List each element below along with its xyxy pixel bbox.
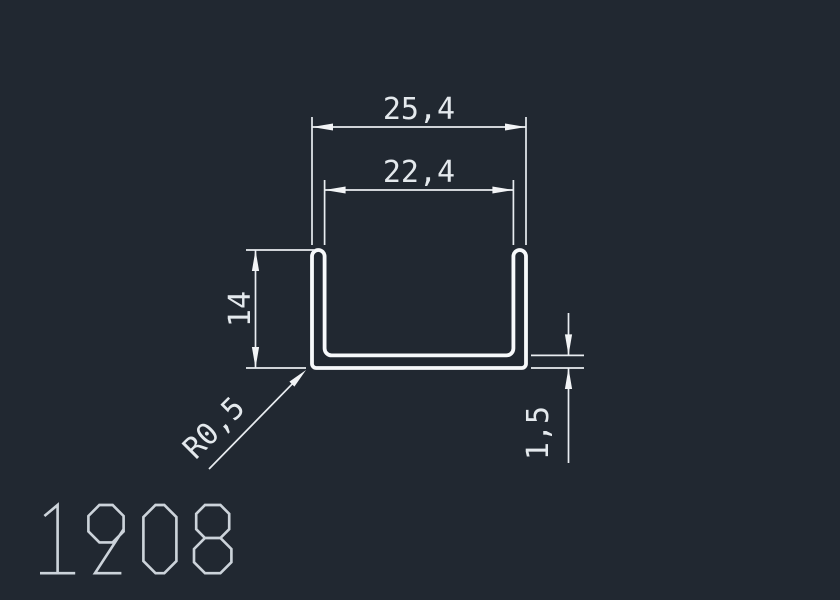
dimension-value-corner-radius: R0,5 (176, 390, 252, 466)
glyph-digit-9 (88, 505, 123, 573)
arrowhead-right-icon (505, 124, 526, 131)
cad-drawing-canvas: 25,4 22,4 14 R0,5 (0, 0, 840, 600)
part-number-title (40, 505, 231, 573)
dimension-thickness: 1,5 (521, 313, 584, 463)
dimension-value-outer-width: 25,4 (383, 92, 455, 127)
dimension-height: 14 (223, 250, 314, 368)
arrowhead-down-icon (565, 334, 572, 355)
glyph-digit-8 (194, 505, 231, 573)
dimension-inner-width: 22,4 (325, 155, 514, 245)
cad-drawing: 25,4 22,4 14 R0,5 (0, 0, 840, 600)
dimension-value-inner-width: 22,4 (383, 155, 455, 190)
arrowhead-up-icon (565, 368, 572, 389)
arrowhead-left-icon (312, 124, 333, 131)
arrowhead-right-icon (492, 187, 513, 194)
glyph-digit-1 (40, 505, 75, 573)
u-channel-profile-outline (312, 250, 526, 368)
leader-corner-radius: R0,5 (176, 370, 306, 469)
dimension-value-height: 14 (223, 291, 258, 327)
arrowhead-top-icon (252, 250, 259, 271)
glyph-digit-0 (143, 505, 176, 573)
arrowhead-bottom-icon (252, 347, 259, 368)
arrowhead-left-icon (325, 187, 346, 194)
dimension-value-thickness: 1,5 (521, 406, 556, 460)
